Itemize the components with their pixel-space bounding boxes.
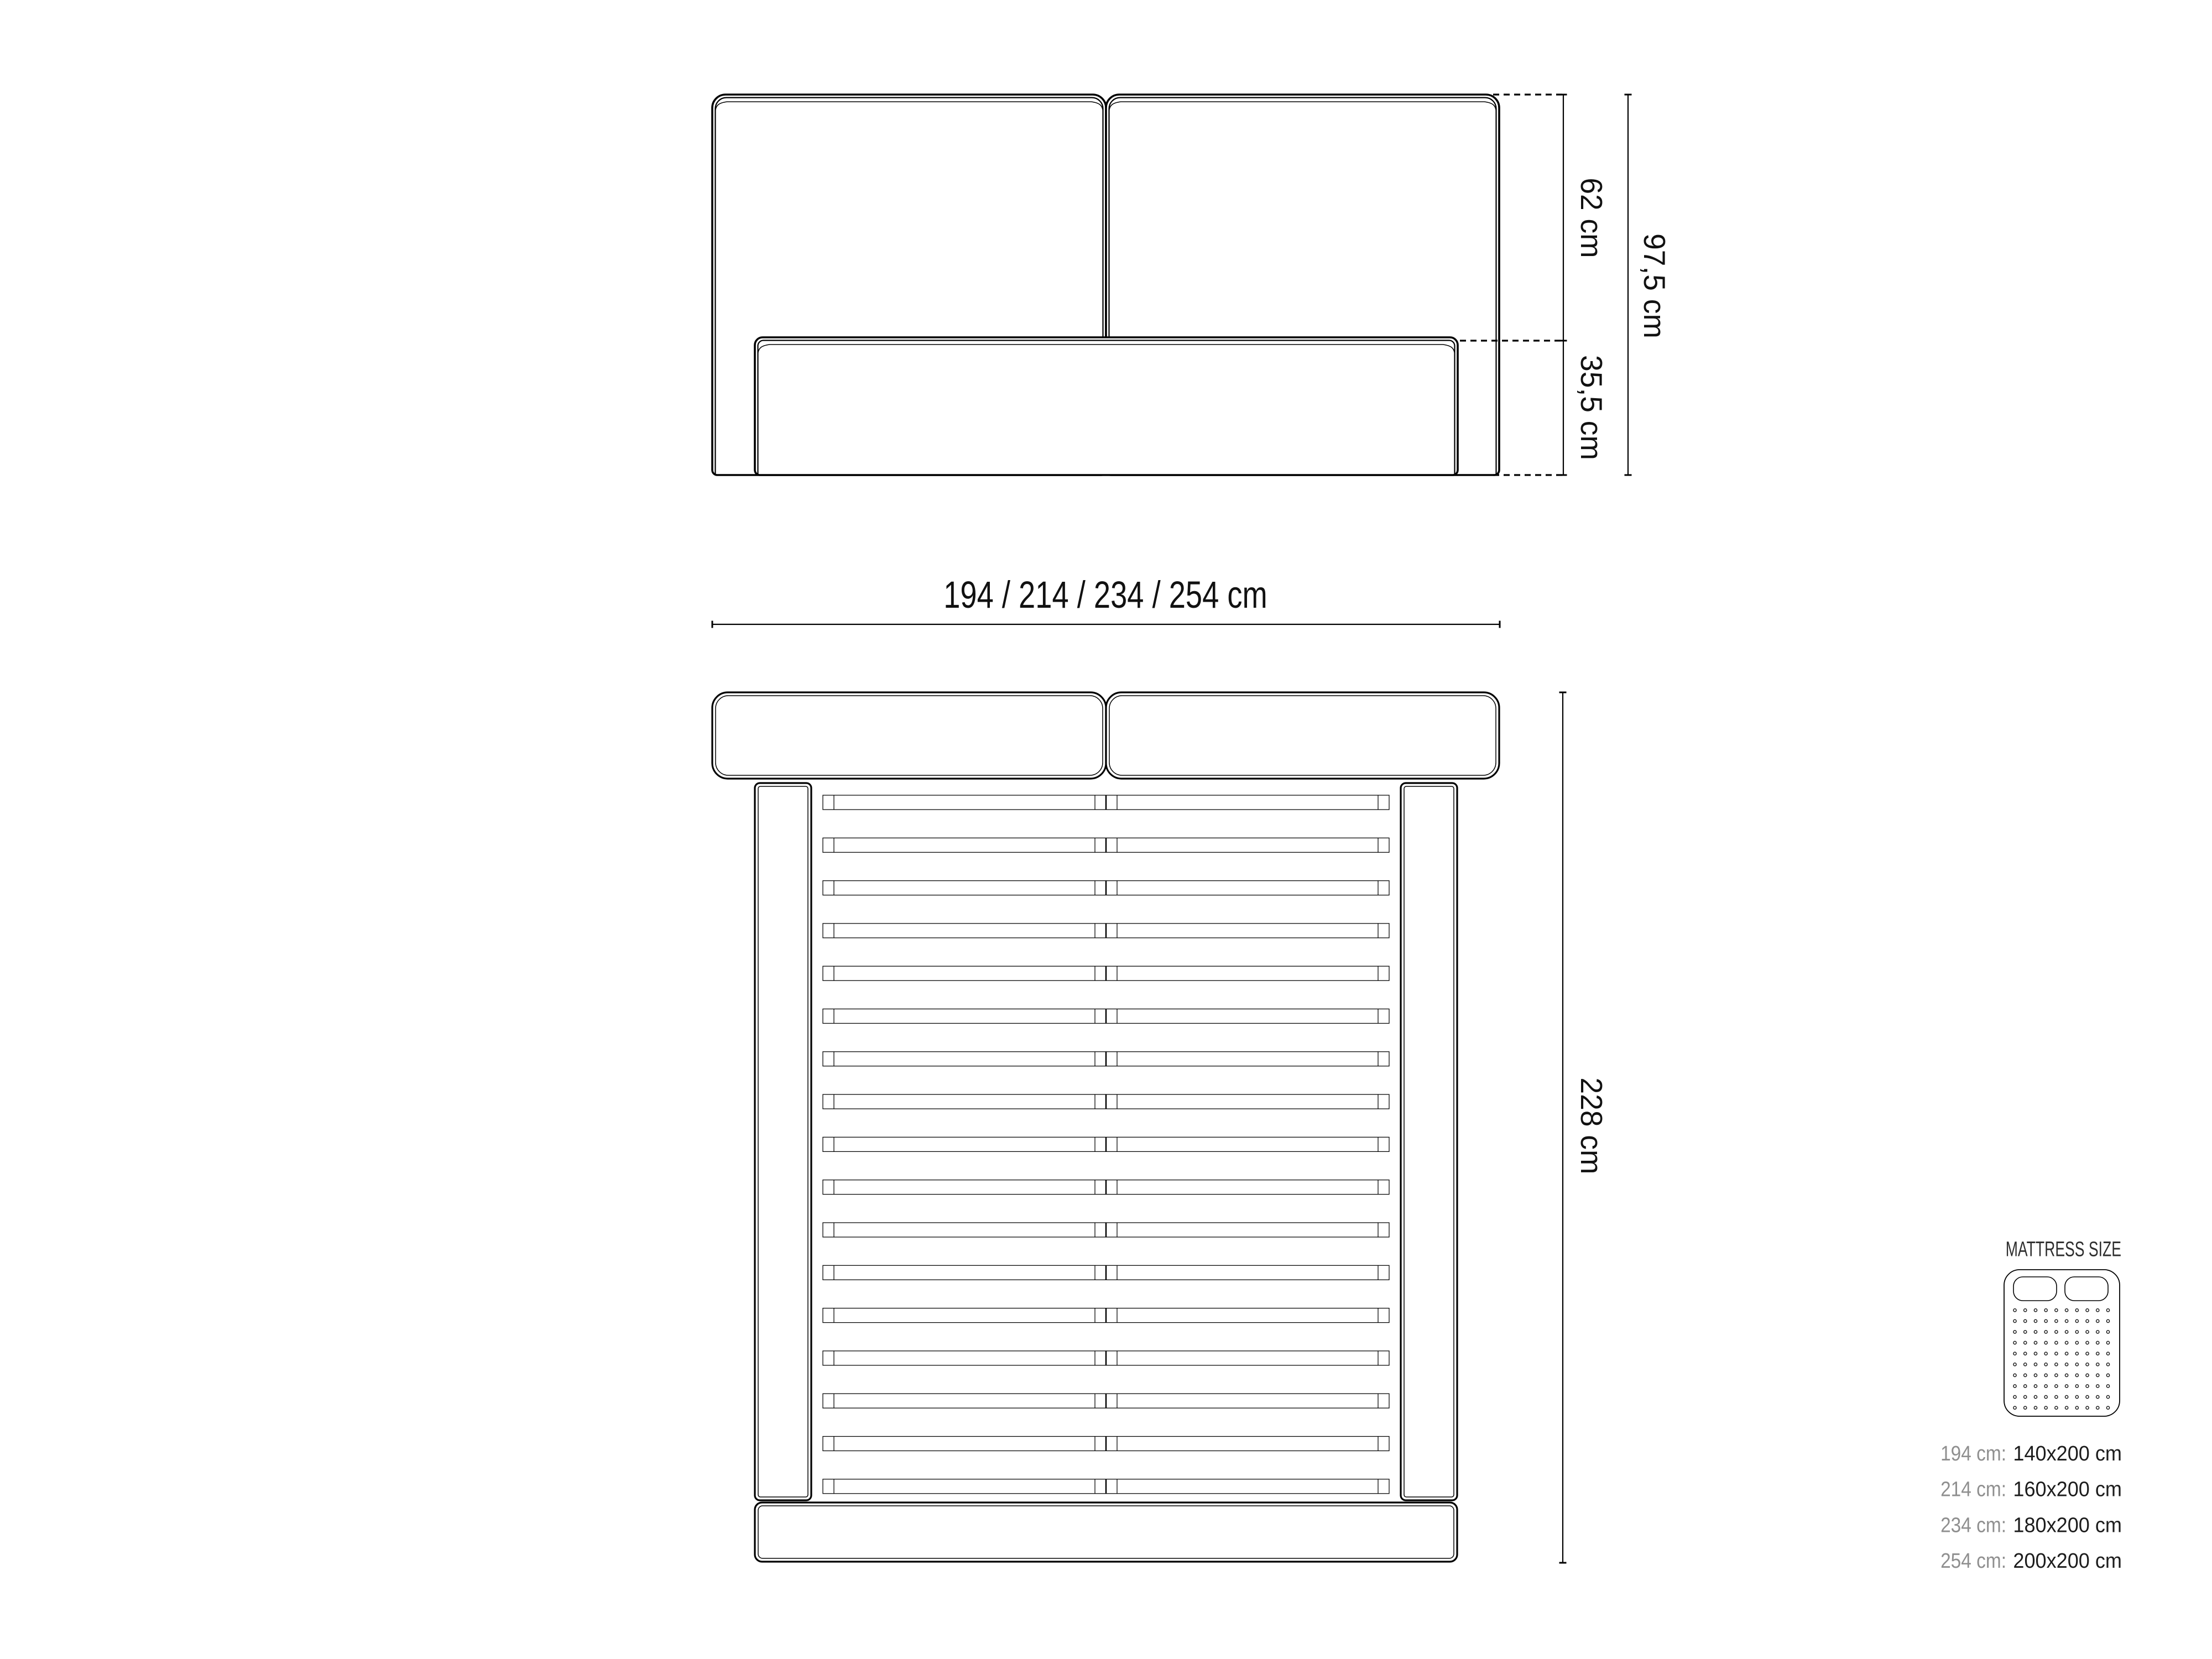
svg-text:180x200 cm: 180x200 cm [2013, 1512, 2122, 1536]
svg-text:194 cm:: 194 cm: [1940, 1442, 2006, 1465]
svg-text:228 cm: 228 cm [1574, 1078, 1608, 1175]
svg-text:160x200 cm: 160x200 cm [2013, 1477, 2122, 1501]
svg-text:234 cm:: 234 cm: [1940, 1513, 2006, 1536]
svg-text:35,5 cm: 35,5 cm [1574, 355, 1608, 460]
svg-text:214 cm:: 214 cm: [1940, 1478, 2006, 1501]
svg-text:97,5 cm: 97,5 cm [1637, 233, 1671, 338]
svg-text:MATTRESS SIZE: MATTRESS SIZE [2006, 1237, 2121, 1261]
svg-text:254 cm:: 254 cm: [1940, 1549, 2006, 1572]
svg-text:62 cm: 62 cm [1574, 178, 1608, 258]
svg-text:194 / 214 / 234 / 254 cm: 194 / 214 / 234 / 254 cm [943, 574, 1267, 617]
svg-text:200x200 cm: 200x200 cm [2013, 1548, 2122, 1572]
svg-text:140x200 cm: 140x200 cm [2013, 1441, 2122, 1465]
